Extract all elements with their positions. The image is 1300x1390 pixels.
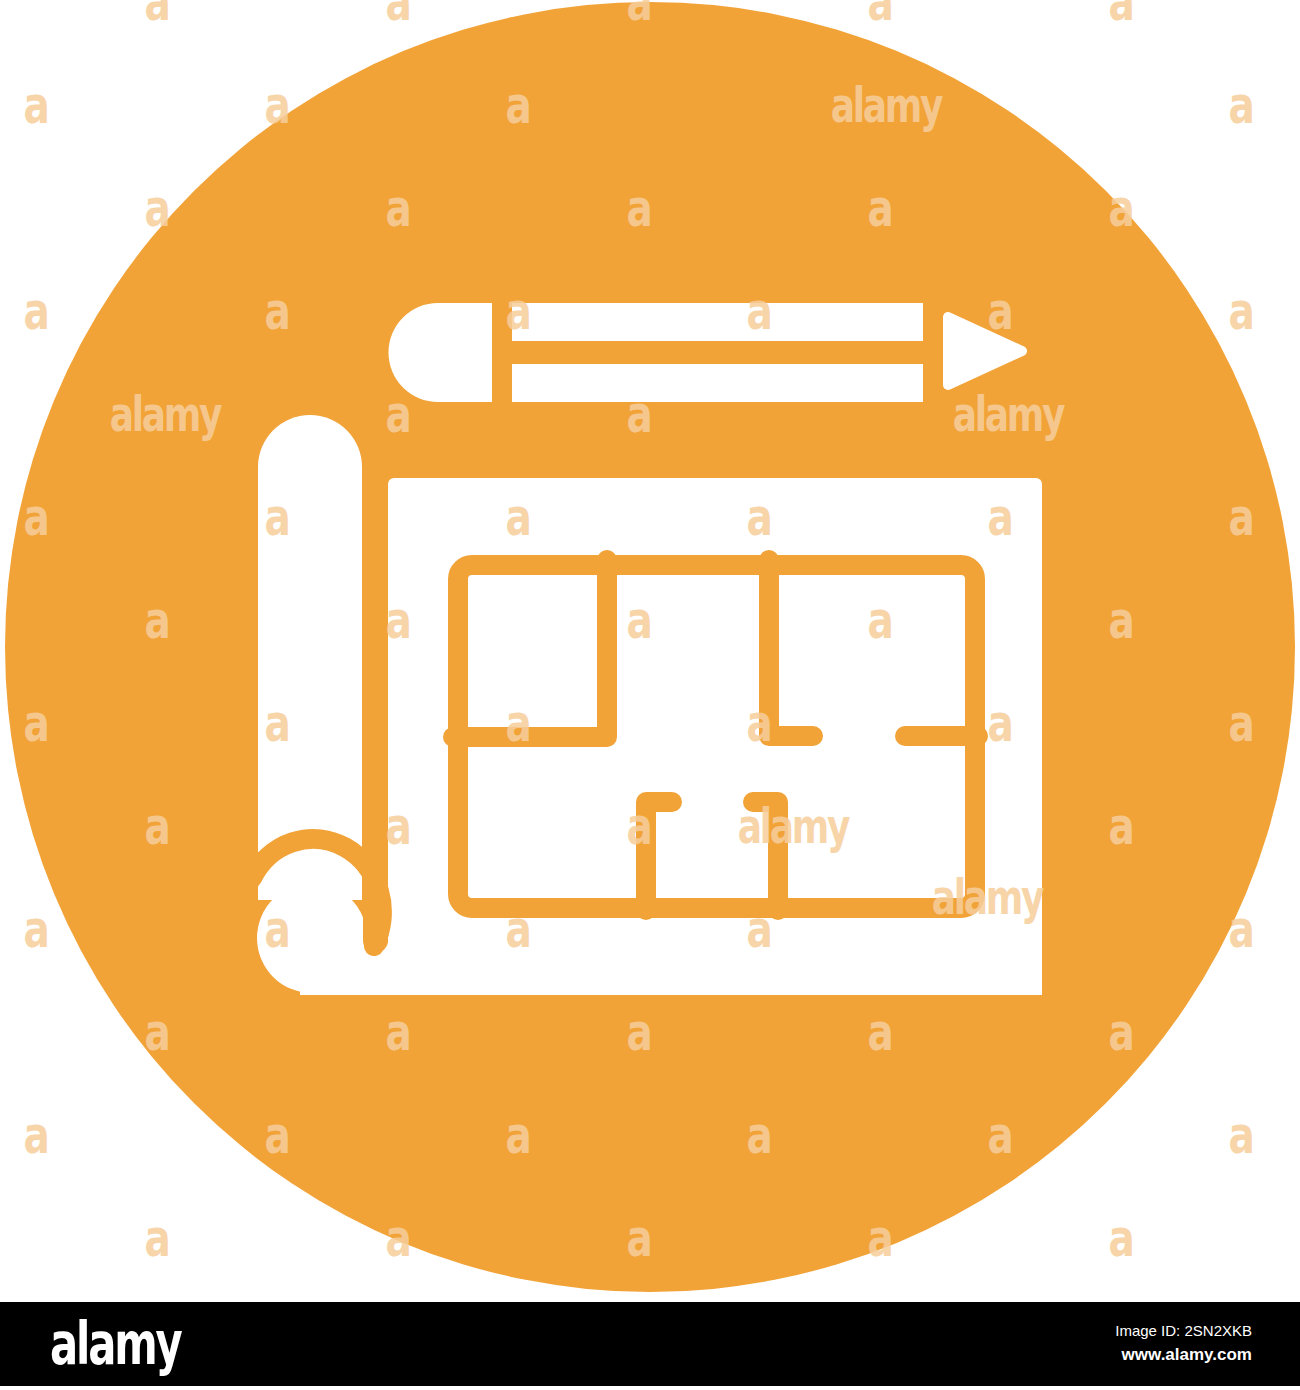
pencil-body-top-stripe: [512, 303, 923, 341]
pencil-body-bottom-stripe: [512, 364, 923, 402]
footer-meta: Image ID: 2SN2XKB www.alamy.com: [1115, 1319, 1252, 1369]
blueprint-pencil-icon: [0, 0, 1300, 1303]
image-id-label: Image ID: 2SN2XKB: [1115, 1319, 1252, 1342]
paper-roll: [258, 415, 362, 900]
stock-image-canvas: aaaaaaaaaaaaaaaaaaaaaaaaaaaaaaaaaaaaaaaa…: [0, 0, 1300, 1390]
footer-bar: alamy Image ID: 2SN2XKB www.alamy.com: [0, 1302, 1300, 1386]
alamy-url-link[interactable]: www.alamy.com: [1115, 1342, 1252, 1368]
pencil-eraser-cap: [389, 303, 493, 402]
alamy-logo: alamy: [50, 1315, 181, 1373]
